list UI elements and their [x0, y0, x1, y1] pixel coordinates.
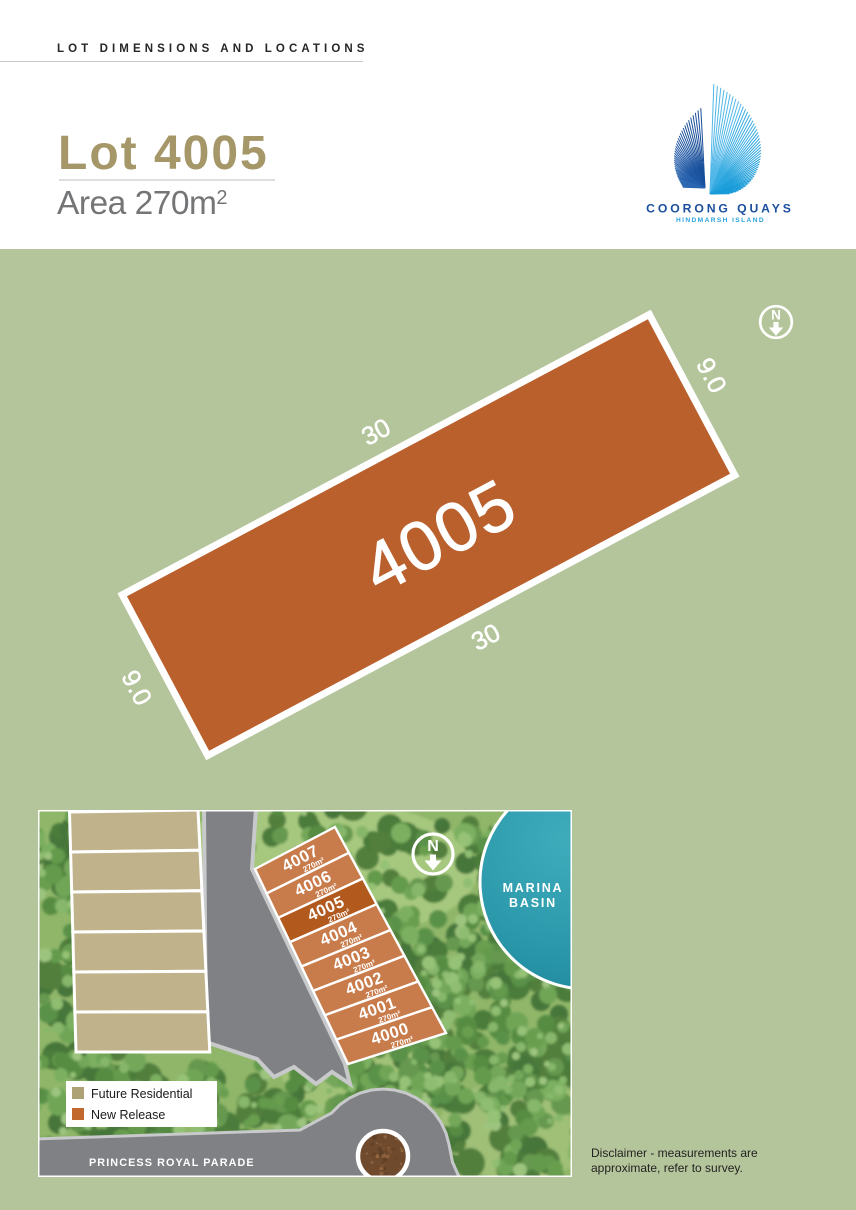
svg-text:30: 30	[467, 619, 505, 657]
svg-text:N: N	[427, 838, 439, 855]
svg-text:Future Residential: Future Residential	[91, 1087, 192, 1101]
svg-text:MARINA: MARINA	[503, 881, 564, 895]
svg-text:New Release: New Release	[91, 1108, 165, 1122]
svg-text:30: 30	[357, 413, 395, 451]
svg-text:HINDMARSH ISLAND: HINDMARSH ISLAND	[676, 217, 765, 224]
svg-text:BASIN: BASIN	[509, 896, 557, 910]
svg-text:N: N	[771, 308, 781, 323]
svg-text:9.0: 9.0	[690, 353, 731, 397]
svg-text:COORONG QUAYS: COORONG QUAYS	[646, 202, 794, 216]
svg-text:PRINCESS ROYAL PARADE: PRINCESS ROYAL PARADE	[89, 1157, 255, 1169]
svg-text:9.0: 9.0	[115, 666, 156, 710]
